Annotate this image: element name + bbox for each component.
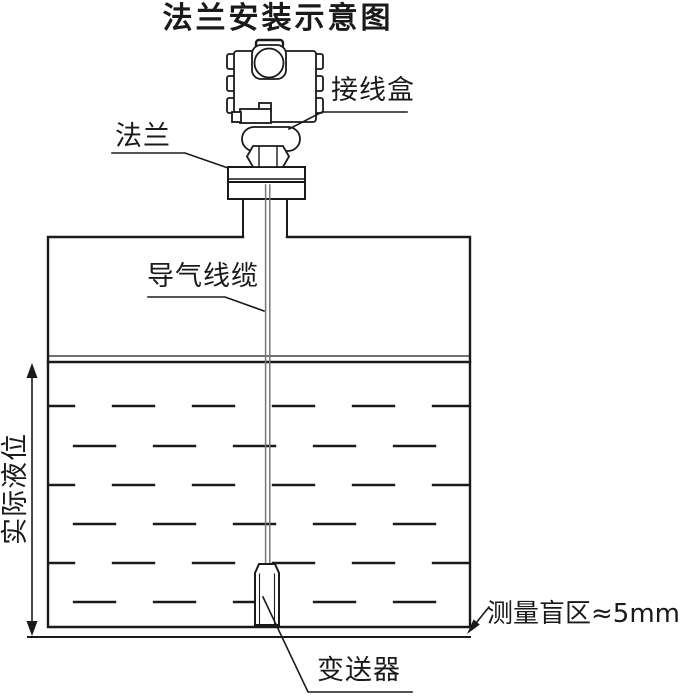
flange-leader <box>112 153 228 168</box>
level-arrowhead-up <box>27 363 38 378</box>
blind-zone-label: 测量盲区≈5mm <box>487 600 680 629</box>
flange-adapter <box>228 182 305 199</box>
hex-nut <box>247 146 289 167</box>
transmitter-label: 变送器 <box>317 656 401 686</box>
air-cable-leader <box>148 297 264 311</box>
diagram-title: 法兰安装示意图 <box>138 2 418 35</box>
junction-box-label: 接线盒 <box>331 76 415 106</box>
flange-plate <box>228 167 305 182</box>
terminal-tab <box>232 112 241 122</box>
air-guide-cable <box>266 185 270 566</box>
level-arrowhead-down <box>27 621 38 636</box>
air-cable-label: 导气线缆 <box>147 262 259 292</box>
actual-level-label: 实际液位 <box>1 431 31 547</box>
transmitter-probe <box>255 564 279 625</box>
head-dome <box>255 49 284 78</box>
flange-label: 法兰 <box>115 122 171 152</box>
terminal-block <box>240 109 271 123</box>
flange-installation-diagram: 法兰安装示意图 接线盒 法兰 导气线缆 实际液位 测量盲区≈5mm 变送器 <box>0 0 700 700</box>
